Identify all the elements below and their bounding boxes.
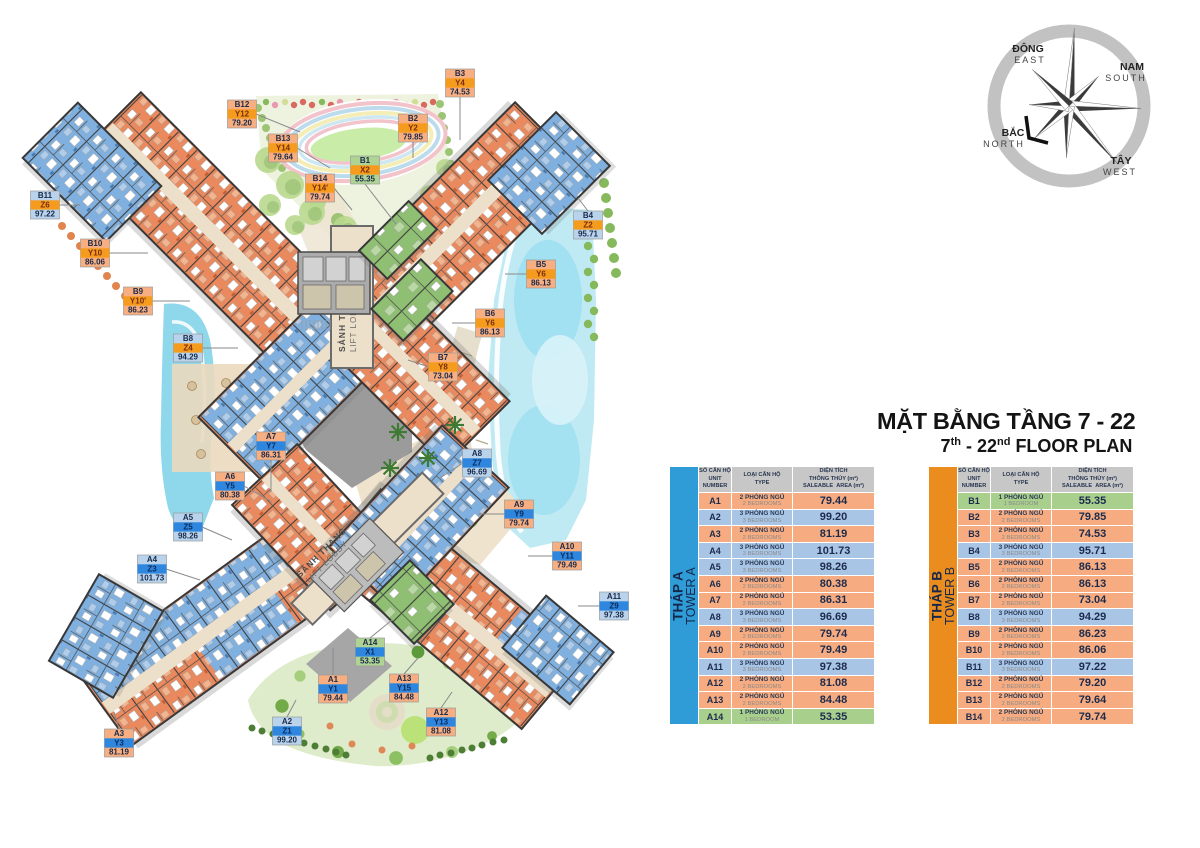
svg-text:X1: X1 xyxy=(365,648,375,657)
svg-text:79.20: 79.20 xyxy=(232,119,253,128)
svg-text:B12: B12 xyxy=(235,100,250,109)
svg-text:79.74: 79.74 xyxy=(310,193,331,202)
svg-text:B14: B14 xyxy=(313,174,328,183)
svg-text:ĐÔNG: ĐÔNG xyxy=(1012,42,1044,55)
svg-text:Y8: Y8 xyxy=(438,363,448,372)
svg-text:95.71: 95.71 xyxy=(578,230,599,239)
svg-text:98.26: 98.26 xyxy=(178,532,199,541)
svg-text:Y5: Y5 xyxy=(225,482,235,491)
svg-text:A9: A9 xyxy=(514,500,525,509)
svg-text:81.08: 81.08 xyxy=(431,727,452,736)
svg-text:86.13: 86.13 xyxy=(480,328,501,337)
svg-text:96.69: 96.69 xyxy=(467,468,488,477)
svg-text:86.13: 86.13 xyxy=(531,279,552,288)
svg-text:B8: B8 xyxy=(183,334,194,343)
svg-text:Y6: Y6 xyxy=(485,319,495,328)
svg-text:B6: B6 xyxy=(485,309,496,318)
svg-text:Z7: Z7 xyxy=(472,459,482,468)
svg-text:Y13: Y13 xyxy=(434,718,449,727)
svg-text:A3: A3 xyxy=(114,729,125,738)
svg-text:Z3: Z3 xyxy=(147,565,157,574)
svg-text:101.73: 101.73 xyxy=(140,574,165,583)
svg-text:94.29: 94.29 xyxy=(178,353,199,362)
svg-text:SOUTH: SOUTH xyxy=(1105,73,1147,83)
svg-text:A11: A11 xyxy=(607,592,622,601)
svg-text:B2: B2 xyxy=(408,114,419,123)
svg-text:BẮC: BẮC xyxy=(1002,126,1025,139)
svg-text:86.31: 86.31 xyxy=(261,451,282,460)
svg-text:X2: X2 xyxy=(360,166,370,175)
svg-text:Y1: Y1 xyxy=(328,685,338,694)
svg-text:73.04: 73.04 xyxy=(433,372,454,381)
svg-text:B11: B11 xyxy=(38,191,53,200)
svg-text:Y4: Y4 xyxy=(455,79,465,88)
svg-text:74.53: 74.53 xyxy=(450,88,471,97)
svg-text:A5: A5 xyxy=(183,513,194,522)
svg-text:B10: B10 xyxy=(88,239,103,248)
svg-text:A12: A12 xyxy=(434,708,449,717)
svg-text:Y11: Y11 xyxy=(560,552,574,561)
svg-text:B9: B9 xyxy=(133,287,144,296)
svg-text:86.23: 86.23 xyxy=(128,306,149,315)
svg-text:NORTH: NORTH xyxy=(983,139,1025,149)
svg-text:A6: A6 xyxy=(225,472,236,481)
svg-text:B3: B3 xyxy=(455,69,466,78)
svg-text:Y3: Y3 xyxy=(114,739,124,748)
svg-text:55.35: 55.35 xyxy=(355,175,376,184)
svg-text:99.20: 99.20 xyxy=(277,736,298,745)
svg-text:A10: A10 xyxy=(560,542,575,551)
svg-text:B1: B1 xyxy=(360,156,371,165)
svg-text:53.35: 53.35 xyxy=(360,657,381,666)
svg-text:Y2: Y2 xyxy=(408,124,418,133)
svg-text:Y9: Y9 xyxy=(514,510,524,519)
svg-text:A1: A1 xyxy=(328,675,339,684)
svg-text:TÂY: TÂY xyxy=(1111,154,1132,167)
svg-text:97.38: 97.38 xyxy=(604,611,625,620)
svg-text:A7: A7 xyxy=(266,432,277,441)
svg-text:86.06: 86.06 xyxy=(85,258,106,267)
svg-text:EAST: EAST xyxy=(1014,55,1046,65)
svg-text:Y6: Y6 xyxy=(536,270,546,279)
svg-text:B5: B5 xyxy=(536,260,547,269)
svg-text:Z5: Z5 xyxy=(183,523,193,532)
svg-text:A2: A2 xyxy=(282,717,293,726)
svg-text:Z1: Z1 xyxy=(282,727,292,736)
svg-text:Z2: Z2 xyxy=(583,221,593,230)
svg-text:B13: B13 xyxy=(276,134,291,143)
svg-text:B7: B7 xyxy=(438,353,449,362)
svg-text:Y7: Y7 xyxy=(266,442,276,451)
svg-text:WEST: WEST xyxy=(1103,167,1137,177)
svg-text:Y14: Y14 xyxy=(276,144,291,153)
svg-text:NAM: NAM xyxy=(1120,61,1144,73)
svg-text:Y14': Y14' xyxy=(312,184,328,193)
svg-text:B4: B4 xyxy=(583,211,594,220)
svg-text:A13: A13 xyxy=(397,674,412,683)
svg-text:A4: A4 xyxy=(147,555,158,564)
svg-text:80.38: 80.38 xyxy=(220,491,241,500)
svg-text:Z9: Z9 xyxy=(609,602,619,611)
svg-text:Y12: Y12 xyxy=(235,110,250,119)
svg-text:Y10: Y10 xyxy=(88,249,103,258)
svg-text:A8: A8 xyxy=(472,449,483,458)
svg-text:Y15: Y15 xyxy=(397,684,412,693)
svg-text:79.49: 79.49 xyxy=(557,561,578,570)
svg-text:Y10': Y10' xyxy=(130,297,146,306)
svg-text:81.19: 81.19 xyxy=(109,748,130,757)
svg-text:79.44: 79.44 xyxy=(323,694,344,703)
svg-text:84.48: 84.48 xyxy=(394,693,415,702)
svg-text:A14: A14 xyxy=(363,638,378,647)
svg-text:Z4: Z4 xyxy=(183,344,193,353)
svg-text:97.22: 97.22 xyxy=(35,210,56,219)
svg-text:79.85: 79.85 xyxy=(403,133,424,142)
svg-text:79.74: 79.74 xyxy=(509,519,530,528)
svg-text:79.64: 79.64 xyxy=(273,153,294,162)
svg-text:Z6: Z6 xyxy=(40,201,50,210)
